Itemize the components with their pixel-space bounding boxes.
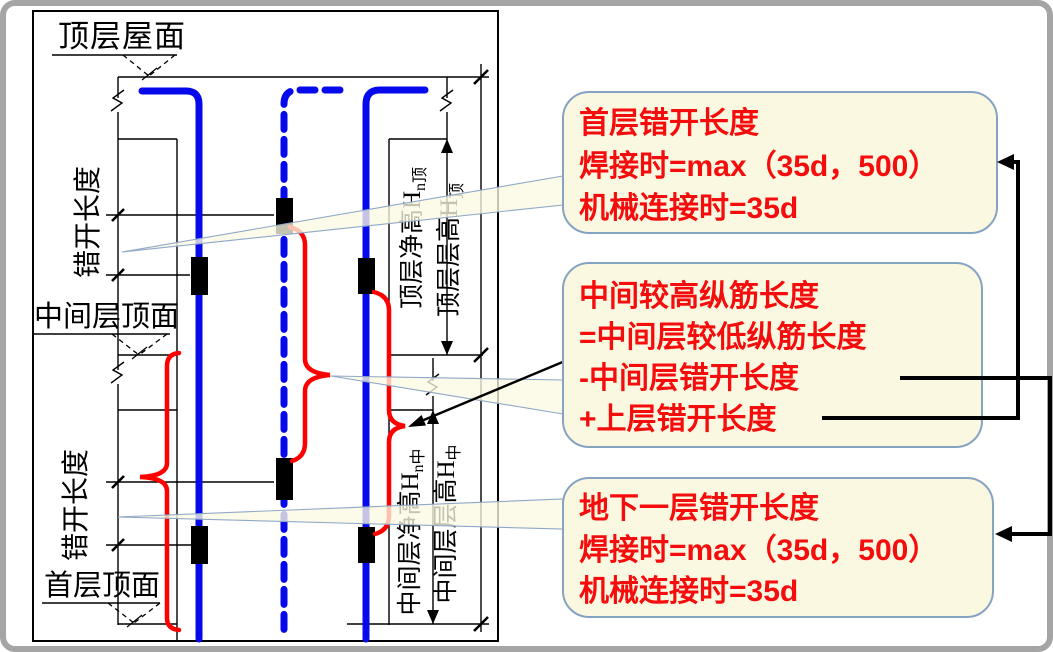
mid-floor-level-label: 中间层顶面 <box>34 300 179 333</box>
callout2-line4: +上层错开长度 <box>579 403 777 436</box>
callout1-line1: 首层错开长度 <box>579 107 759 140</box>
callout1-line3: 机械连接时=35d <box>579 192 798 225</box>
callout3-line2: 焊接时=max（35d，500） <box>579 533 938 567</box>
coupler-right-top <box>358 258 375 294</box>
callout2-line3: -中间层错开长度 <box>579 362 799 395</box>
callout-first-floor-stagger: 首层错开长度 焊接时=max（35d，500） 机械连接时=35d <box>563 92 997 233</box>
coupler-left-bottom <box>191 526 208 564</box>
callout2-line1: 中间较高纵筋长度 <box>579 279 819 313</box>
stagger-length-upper-label: 错开长度 <box>72 166 104 278</box>
coupler-right-bottom <box>358 527 375 563</box>
roof-level-label: 顶层屋面 <box>58 19 186 54</box>
first-floor-level-label: 首层顶面 <box>44 569 160 602</box>
stagger-length-lower-label: 错开长度 <box>60 449 92 561</box>
callout1-line2: 焊接时=max（35d，500） <box>579 149 938 183</box>
coupler-center-bottom <box>276 458 293 500</box>
callout3-line3: 机械连接时=35d <box>579 575 798 608</box>
coupler-left-top <box>191 257 208 295</box>
callout-basement-stagger: 地下一层错开长度 焊接时=max（35d，500） 机械连接时=35d <box>563 478 993 617</box>
callout2-line2: =中间层较低纵筋长度 <box>579 320 867 354</box>
annotated-rebar-diagram: 顶层屋面 中间层顶面 首层顶面 错开长度 错开长度 顶层净高Hn顶 顶层层高H顶… <box>0 0 1053 652</box>
callout3-line1: 地下一层错开长度 <box>579 492 819 525</box>
mid-net-height-label: 中间层净高Hn中 <box>396 448 427 615</box>
